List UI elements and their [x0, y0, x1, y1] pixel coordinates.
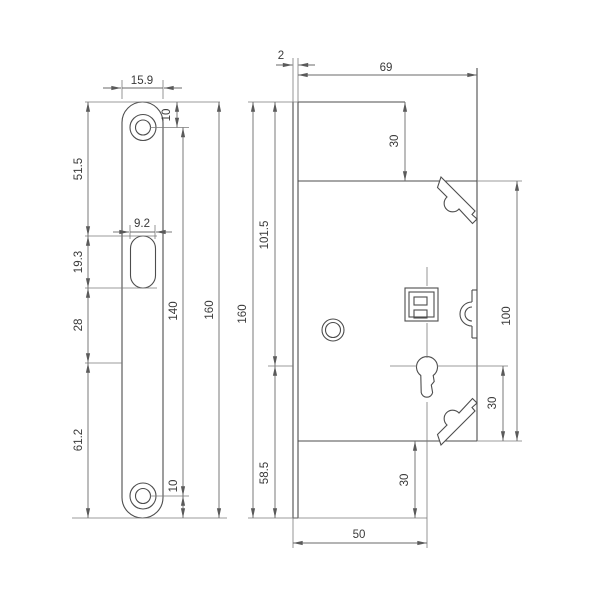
dim-label-top-hole-offset: 10 [161, 109, 173, 122]
dim-label-top-to-latch: 30 [389, 135, 401, 148]
dim-label-backset: 50 [353, 529, 366, 541]
dim-label-side-total-height: 160 [237, 304, 249, 323]
faceplate-outline [122, 102, 163, 518]
dim-label-case-depth: 69 [380, 62, 393, 74]
screw-hole-bottom-inner [136, 489, 151, 504]
handle-slot [131, 236, 156, 288]
lock-technical-drawing: 15.9 10 51.5 9.2 19.3 28 61.2 140 10 160 [0, 0, 601, 600]
dim-label-key-to-case-bottom: 30 [487, 397, 499, 410]
keyhole [417, 357, 438, 398]
dim-label-key-to-plate-bottom: 58.5 [259, 462, 271, 484]
dim-label-plate-width: 15.9 [131, 75, 153, 87]
screw-hole-top-inner [136, 120, 151, 135]
dim-label-slot-height: 19.3 [73, 251, 85, 273]
lock-case-side-view [293, 68, 477, 518]
dim-label-front-total-height: 160 [204, 300, 216, 319]
hook-bolt-bottom [438, 399, 478, 446]
dim-label-hole-spacing: 140 [168, 301, 180, 320]
case-hole-inner [326, 323, 341, 338]
front-view-extension-lines [72, 80, 227, 518]
side-view-extension-lines [248, 58, 522, 548]
front-view-dimensions: 15.9 10 51.5 9.2 19.3 28 61.2 140 10 160 [73, 75, 219, 518]
dim-label-latch-to-case-bottom: 100 [501, 306, 513, 325]
dim-label-slot-width: 9.2 [134, 218, 150, 230]
dim-label-faceplate-thickness: 2 [278, 50, 284, 62]
dim-label-key-to-bottom: 61.2 [73, 429, 85, 451]
side-view-dimensions: 2 69 30 101.5 160 58.5 100 30 30 50 [237, 50, 517, 543]
latch-bolt-top [438, 177, 478, 224]
spindle-follower [405, 288, 438, 321]
edge-roller [460, 290, 477, 338]
dim-label-bottom-hole-offset: 10 [168, 480, 180, 493]
dim-label-top-to-slot: 51.5 [73, 158, 85, 180]
faceplate-front-view [122, 102, 163, 518]
dim-label-slot-to-key: 28 [73, 319, 85, 332]
dim-label-case-to-plate-bottom: 30 [399, 474, 411, 487]
drawing-canvas: 15.9 10 51.5 9.2 19.3 28 61.2 140 10 160 [0, 0, 601, 600]
dim-label-top-to-key: 101.5 [259, 221, 271, 250]
